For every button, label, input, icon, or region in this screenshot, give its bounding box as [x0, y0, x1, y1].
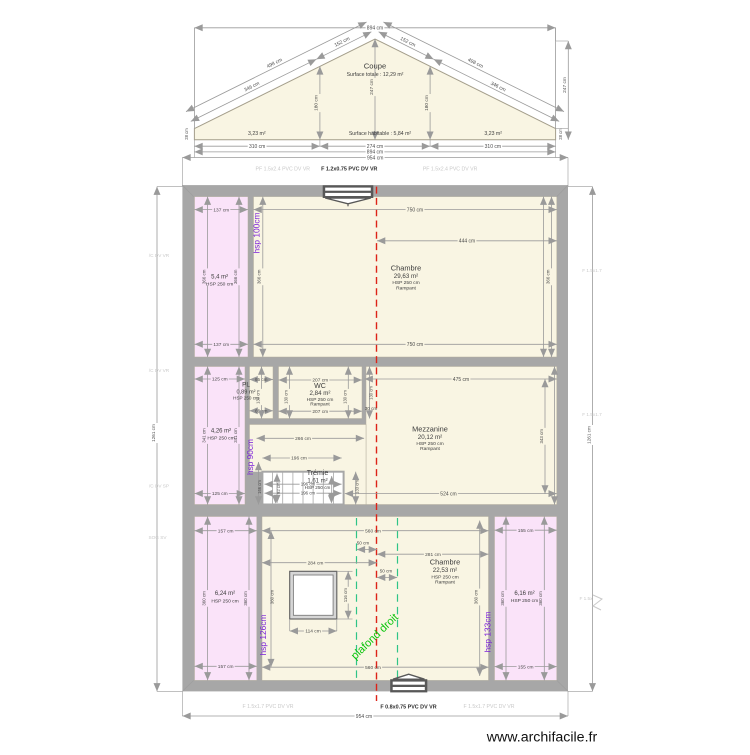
- svg-text:50 cm: 50 cm: [357, 541, 370, 546]
- svg-text:310 cm: 310 cm: [485, 144, 501, 150]
- svg-text:F 1.5x1.7 PVC DV VR: F 1.5x1.7 PVC DV VR: [463, 704, 514, 710]
- svg-text:196 cm: 196 cm: [301, 491, 316, 496]
- svg-text:20,12 m²: 20,12 m²: [418, 434, 442, 441]
- svg-text:F 0.8x0.75 PVC DV VR: F 0.8x0.75 PVC DV VR: [380, 704, 436, 710]
- svg-text:133 cm: 133 cm: [354, 480, 359, 494]
- svg-text:PF 1.5x2.4 PVC DV VR: PF 1.5x2.4 PVC DV VR: [256, 166, 311, 172]
- svg-text:HSP 250 cm: HSP 250 cm: [511, 598, 538, 604]
- svg-text:894 cm: 894 cm: [367, 26, 383, 32]
- svg-text:310 cm: 310 cm: [249, 144, 265, 150]
- svg-text:196 cm: 196 cm: [291, 456, 307, 462]
- svg-text:155 cm: 155 cm: [518, 664, 534, 670]
- svg-text:Chambre: Chambre: [391, 264, 421, 273]
- svg-text:SOG SV: SOG SV: [149, 535, 168, 540]
- svg-text:157 cm: 157 cm: [218, 528, 234, 534]
- svg-text:4,26 m²: 4,26 m²: [211, 429, 231, 435]
- svg-text:125 cm: 125 cm: [212, 491, 228, 497]
- svg-text:hsp 133cm: hsp 133cm: [483, 611, 493, 652]
- svg-text:F 1.5x1.7 PVC DV VR: F 1.5x1.7 PVC DV VR: [242, 704, 293, 710]
- svg-text:360 cm: 360 cm: [538, 591, 543, 606]
- svg-text:WC: WC: [314, 383, 326, 390]
- svg-text:157 cm: 157 cm: [218, 664, 234, 670]
- svg-text:366 cm: 366 cm: [545, 269, 550, 284]
- svg-text:360 cm: 360 cm: [243, 591, 248, 606]
- svg-text:Rampant: Rampant: [420, 446, 440, 452]
- svg-text:Surface habitable : 5,84 m²: Surface habitable : 5,84 m²: [349, 131, 412, 137]
- svg-text:360 cm: 360 cm: [201, 591, 206, 606]
- svg-text:247 cm: 247 cm: [369, 79, 375, 95]
- svg-text:22,53 m²: 22,53 m²: [433, 567, 457, 574]
- svg-text:/C DV VR: /C DV VR: [149, 253, 170, 258]
- svg-text:Surface totale : 12,29 m²: Surface totale : 12,29 m²: [347, 72, 404, 78]
- svg-text:444 cm: 444 cm: [459, 239, 475, 245]
- svg-text:560 cm: 560 cm: [365, 665, 381, 671]
- svg-text:/C DV SP: /C DV SP: [149, 484, 169, 489]
- svg-text:750 cm: 750 cm: [407, 342, 423, 348]
- svg-text:Mezzanine: Mezzanine: [412, 425, 448, 434]
- svg-text:3,23 m²: 3,23 m²: [484, 131, 502, 137]
- svg-text:HSP 250 cm: HSP 250 cm: [392, 280, 419, 286]
- svg-text:hsp 126cm: hsp 126cm: [258, 614, 268, 655]
- svg-text:hsp 100cm: hsp 100cm: [252, 212, 262, 253]
- svg-text:F 1.5x: F 1.5x: [579, 596, 593, 601]
- svg-text:HSP 250 cm: HSP 250 cm: [416, 441, 443, 447]
- svg-text:343 cm: 343 cm: [539, 429, 544, 444]
- svg-text:750 cm: 750 cm: [407, 207, 423, 213]
- svg-text:3,23 m²: 3,23 m²: [248, 131, 266, 137]
- svg-text:PF 1.5x2.4 PVC DV VR: PF 1.5x2.4 PVC DV VR: [423, 166, 478, 172]
- svg-text:266 cm: 266 cm: [295, 436, 311, 442]
- svg-text:hsp 90cm: hsp 90cm: [245, 439, 255, 475]
- svg-text:366 cm: 366 cm: [233, 269, 238, 284]
- svg-text:360 cm: 360 cm: [500, 591, 505, 606]
- svg-text:116 cm: 116 cm: [343, 588, 348, 602]
- svg-text:1261 cm: 1261 cm: [151, 424, 156, 442]
- svg-text:954 cm: 954 cm: [356, 714, 372, 720]
- svg-text:F 1.5x1.7: F 1.5x1.7: [582, 412, 602, 417]
- svg-text:28 cm: 28 cm: [558, 128, 563, 140]
- svg-text:Chambre: Chambre: [430, 558, 460, 567]
- svg-text:341 cm: 341 cm: [201, 428, 206, 443]
- svg-text:28 cm: 28 cm: [184, 128, 189, 140]
- svg-text:5,4 m²: 5,4 m²: [211, 275, 228, 281]
- svg-text:155 cm: 155 cm: [518, 528, 534, 534]
- svg-text:50 cm: 50 cm: [380, 569, 393, 574]
- svg-text:954 cm: 954 cm: [367, 155, 383, 161]
- svg-text:Trémie: Trémie: [307, 470, 329, 477]
- svg-text:29,63 m²: 29,63 m²: [394, 273, 418, 280]
- svg-text:1,61 m²: 1,61 m²: [307, 479, 327, 485]
- svg-text:/C DV VR: /C DV VR: [149, 368, 170, 373]
- svg-text:HSP 250 cm: HSP 250 cm: [233, 396, 259, 401]
- svg-text:137 cm: 137 cm: [213, 342, 229, 348]
- svg-text:180 cm: 180 cm: [424, 95, 430, 111]
- svg-text:PL: PL: [242, 382, 250, 389]
- svg-text:Coupe: Coupe: [364, 62, 386, 71]
- svg-text:360 cm: 360 cm: [474, 589, 479, 604]
- svg-text:180 cm: 180 cm: [314, 95, 320, 111]
- svg-text:HSP 250 cm: HSP 250 cm: [211, 598, 238, 604]
- svg-text:560 cm: 560 cm: [365, 528, 381, 534]
- svg-text:HSP 250 cm: HSP 250 cm: [207, 436, 234, 442]
- svg-text:F 1.2x0.75 PVC DV VR: F 1.2x0.75 PVC DV VR: [321, 166, 377, 172]
- svg-text:www.archifacile.fr: www.archifacile.fr: [486, 729, 598, 745]
- svg-text:130 cm: 130 cm: [284, 390, 289, 404]
- svg-text:475 cm: 475 cm: [453, 377, 469, 383]
- svg-text:166 cm: 166 cm: [257, 480, 262, 494]
- svg-text:130 cm: 130 cm: [369, 386, 374, 400]
- svg-text:130 cm: 130 cm: [342, 390, 347, 404]
- svg-text:2,84 m²: 2,84 m²: [310, 390, 331, 397]
- svg-text:6,16 m²: 6,16 m²: [514, 591, 534, 597]
- svg-text:524 cm: 524 cm: [440, 491, 456, 497]
- svg-text:207 cm: 207 cm: [312, 409, 328, 415]
- svg-text:366 cm: 366 cm: [257, 269, 262, 284]
- svg-text:HSP 250 cm: HSP 250 cm: [206, 282, 233, 288]
- svg-text:114 cm: 114 cm: [305, 629, 320, 635]
- svg-text:HSP 250 cm: HSP 250 cm: [305, 485, 331, 490]
- svg-text:Rampant: Rampant: [396, 285, 416, 291]
- svg-text:6,24 m²: 6,24 m²: [215, 591, 235, 597]
- svg-text:F 1.5x1.7: F 1.5x1.7: [582, 268, 602, 273]
- svg-text:125 cm: 125 cm: [212, 377, 228, 383]
- svg-text:Rampant: Rampant: [310, 402, 330, 408]
- svg-text:92 cm: 92 cm: [276, 482, 281, 494]
- svg-text:247 cm: 247 cm: [562, 77, 568, 93]
- svg-text:137 cm: 137 cm: [213, 207, 229, 213]
- svg-text:284 cm: 284 cm: [308, 560, 324, 566]
- svg-text:1261 cm: 1261 cm: [586, 426, 591, 444]
- svg-text:360 cm: 360 cm: [270, 589, 275, 604]
- svg-text:HSP 250 cm: HSP 250 cm: [431, 574, 458, 580]
- svg-text:30 cm: 30 cm: [365, 406, 378, 411]
- svg-text:Rampant: Rampant: [435, 580, 455, 586]
